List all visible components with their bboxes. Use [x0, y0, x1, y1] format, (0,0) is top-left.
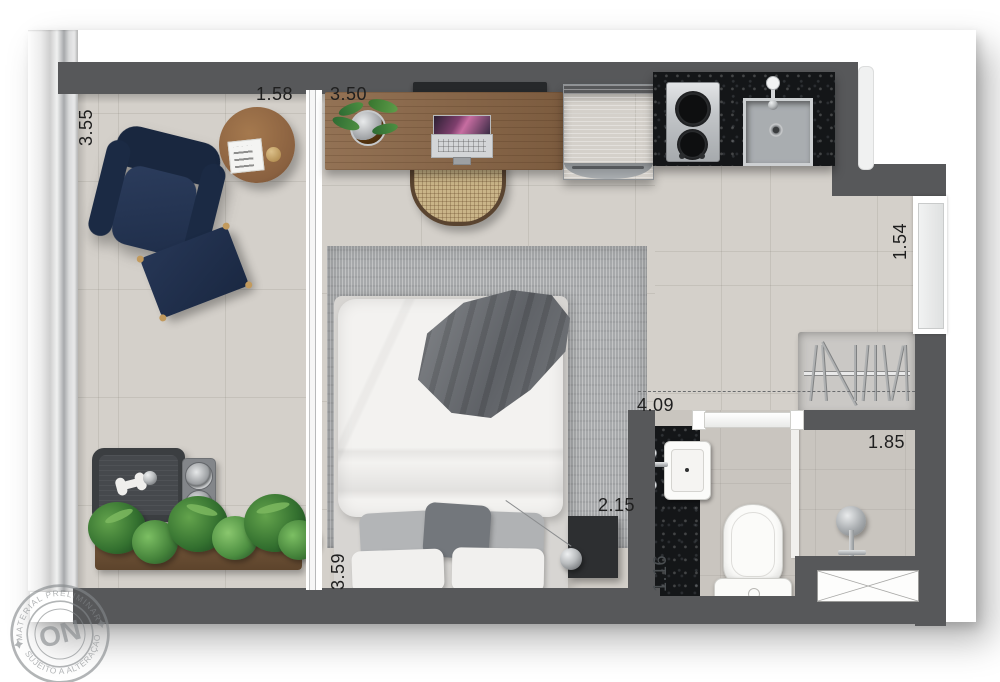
closet-rod: [804, 371, 910, 376]
laptop-trackpad: [453, 157, 471, 165]
glass-facade: [28, 30, 78, 592]
wall-bottom-bath: [655, 596, 800, 624]
kitchen-faucet-joint: [768, 100, 778, 110]
dim-nightstand-wall: 2.15: [598, 495, 635, 516]
fridge: [563, 84, 654, 180]
laptop-screen: [433, 115, 491, 135]
dimension-line: [638, 391, 940, 392]
dog-toy-ball: [143, 471, 157, 485]
dim-entry-width: 1.54: [890, 198, 911, 260]
shower-valve: [838, 550, 866, 555]
pillow-white: [351, 548, 444, 593]
service-shaft: [817, 570, 919, 602]
bathroom-door-post: [790, 410, 804, 430]
facade-shadow: [78, 94, 87, 592]
laptop-keyboard: [431, 134, 493, 158]
pillow-white: [452, 547, 545, 593]
toilet: [714, 504, 790, 606]
watermark-center-logo: ON: [36, 614, 84, 654]
burner: [675, 91, 711, 127]
bathroom-door: [704, 412, 792, 428]
dim-shower-width: 1.85: [868, 432, 905, 453]
dim-living-width: 3.55: [76, 86, 97, 146]
dim-bath-corridor: 4.09: [637, 395, 674, 416]
shaft-cross-icon: [818, 571, 918, 601]
entry-door: [913, 196, 947, 334]
cooktop-knob: [679, 153, 685, 159]
entry-door-leaf: [918, 203, 944, 329]
pendant-lamp: [560, 548, 582, 570]
laptop: [431, 115, 491, 163]
dim-bedroom-depth: 3.59: [328, 538, 349, 590]
wall-kitchen-right: [832, 62, 858, 168]
pet-bowl: [185, 462, 213, 490]
cooktop-knob: [699, 153, 705, 159]
fridge-handle: [572, 166, 644, 169]
kitchen-faucet-base: [766, 76, 780, 90]
kitchen-sink: [743, 98, 813, 166]
sink-drain: [769, 123, 783, 137]
hanger-icon: [874, 345, 876, 401]
wall-hall-shower: [795, 410, 919, 430]
shower-divider: [791, 426, 799, 558]
hanger-icon: [854, 345, 856, 401]
bathroom-sink: [664, 441, 711, 500]
wall-right: [915, 328, 946, 626]
dim-sliding-door: 1.58: [256, 84, 293, 105]
exterior-door-panel: [858, 66, 874, 170]
sink-drain: [685, 468, 689, 472]
wall-entry-top: [832, 164, 946, 196]
cooktop: [666, 82, 720, 162]
toilet-bowl: [723, 504, 783, 588]
dim-bedroom-width: 3.50: [330, 84, 367, 105]
table-ornament: [266, 147, 281, 162]
wall-bottom-main: [73, 588, 660, 624]
magazine: [227, 138, 264, 173]
floor-plan: 3.55 1.58 3.50 1.54 4.09 1.85 2.15 3.59 …: [0, 0, 1000, 682]
dim-vanity-length: 1.16: [650, 540, 671, 592]
sliding-door: [306, 90, 322, 590]
